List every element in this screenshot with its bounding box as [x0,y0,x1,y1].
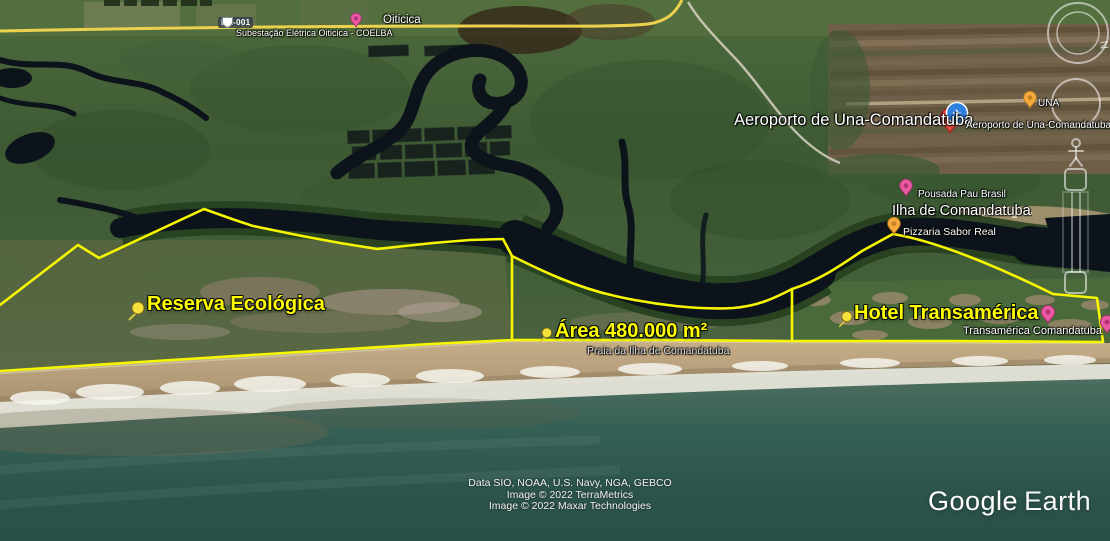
pizzaria-label[interactable]: Pizzaria Sabor Real [903,226,996,238]
una-label[interactable]: UNA [1038,98,1059,109]
transamerica-label[interactable]: Transamérica Comandatuba [963,325,1102,337]
oiticica-label[interactable]: Oiticica [383,14,421,26]
area-label[interactable]: Área 480.000 m² [555,320,707,343]
pousada-label[interactable]: Pousada Pau Brasil [918,189,1006,200]
logo-earth: Earth [1024,486,1091,516]
map-attribution: Data SIO, NOAA, U.S. Navy, NGA, GEBCO Im… [428,478,712,513]
logo-google: Google [928,486,1018,516]
google-earth-logo: GoogleEarth [928,486,1091,517]
substation-label[interactable]: Subestação Elétrica Oiticica - COELBA [236,28,393,38]
airport-label-large[interactable]: Aeroporto de Una-Comandatuba [734,111,973,130]
ilha-label[interactable]: Ilha de Comandatuba [892,203,1031,219]
satellite-terrain: ✈ N [0,0,1110,541]
reserva-label[interactable]: Reserva Ecológica [147,293,325,316]
praia-label[interactable]: Praia da Ilha de Comandatuba [587,345,729,357]
airport-label-small[interactable]: Aeroporto de Una-Comandatuba [966,120,1110,131]
hotel-label[interactable]: Hotel Transamérica [854,302,1039,325]
highway-shield-icon [221,16,234,29]
compass-north-label: N [1097,40,1110,49]
google-earth-viewport[interactable]: ✈ N [0,0,1110,541]
attribution-line3: Image © 2022 Maxar Technologies [428,501,712,513]
attribution-line1: Data SIO, NOAA, U.S. Navy, NGA, GEBCO [428,478,712,490]
